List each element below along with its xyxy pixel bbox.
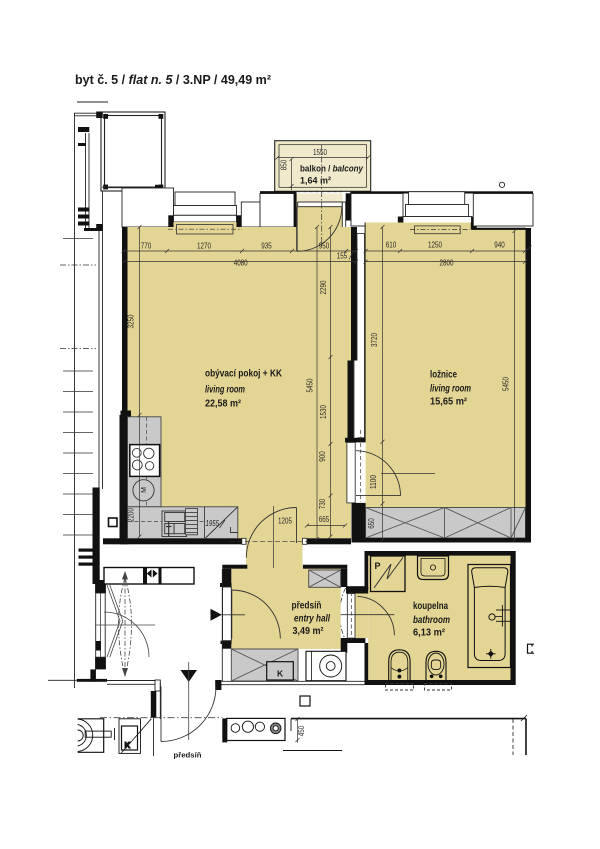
svg-text:1205: 1205 bbox=[278, 516, 292, 526]
svg-text:2200: 2200 bbox=[126, 508, 136, 522]
svg-text:bathroom: bathroom bbox=[413, 614, 450, 626]
svg-text:1250: 1250 bbox=[428, 240, 442, 250]
svg-text:4080: 4080 bbox=[234, 257, 248, 267]
svg-text:K: K bbox=[125, 741, 131, 750]
svg-text:850: 850 bbox=[279, 160, 289, 171]
svg-text:2290: 2290 bbox=[318, 280, 328, 294]
svg-text:6,13 m²: 6,13 m² bbox=[413, 627, 445, 639]
svg-text:living room: living room bbox=[430, 383, 471, 395]
svg-text:940: 940 bbox=[494, 240, 505, 250]
svg-text:předsíň: předsíň bbox=[292, 600, 322, 612]
svg-text:665: 665 bbox=[319, 514, 330, 524]
svg-text:1955: 1955 bbox=[206, 519, 220, 528]
svg-text:935: 935 bbox=[261, 241, 272, 251]
svg-text:K: K bbox=[277, 669, 284, 679]
svg-text:450: 450 bbox=[296, 726, 306, 737]
svg-text:byt č. 5 / flat n. 5 / 3.NP /: byt č. 5 / flat n. 5 / 3.NP / 49,49 m² bbox=[75, 72, 272, 87]
svg-text:950: 950 bbox=[319, 241, 330, 251]
svg-text:1270: 1270 bbox=[197, 241, 211, 251]
svg-text:650: 650 bbox=[366, 518, 376, 529]
svg-text:ložnice: ložnice bbox=[430, 369, 457, 381]
svg-text:15,65 m²: 15,65 m² bbox=[430, 396, 467, 408]
svg-text:balkon / balcony: balkon / balcony bbox=[300, 164, 364, 175]
svg-text:1530: 1530 bbox=[318, 405, 328, 419]
svg-text:koupelna: koupelna bbox=[413, 600, 448, 612]
svg-text:3,49 m²: 3,49 m² bbox=[293, 625, 324, 637]
svg-text:3720: 3720 bbox=[369, 333, 379, 347]
svg-text:155: 155 bbox=[337, 251, 348, 261]
svg-text:1,64 m²: 1,64 m² bbox=[300, 176, 331, 187]
svg-text:22,58 m²: 22,58 m² bbox=[205, 398, 241, 410]
svg-text:770: 770 bbox=[141, 241, 152, 251]
svg-text:entry hall: entry hall bbox=[294, 613, 331, 625]
svg-text:5450: 5450 bbox=[501, 377, 511, 391]
svg-text:M: M bbox=[141, 487, 148, 493]
svg-text:obývací pokoj + KK: obývací pokoj + KK bbox=[205, 368, 282, 380]
svg-text:3250: 3250 bbox=[126, 314, 136, 328]
svg-text:730: 730 bbox=[317, 499, 327, 510]
svg-text:living room: living room bbox=[205, 384, 245, 396]
svg-text:P: P bbox=[375, 561, 381, 571]
svg-text:1100: 1100 bbox=[368, 475, 378, 489]
svg-text:5450: 5450 bbox=[305, 378, 315, 392]
svg-text:2800: 2800 bbox=[440, 257, 454, 267]
svg-text:předsíň: předsíň bbox=[174, 753, 202, 760]
svg-text:610: 610 bbox=[386, 240, 397, 250]
svg-text:1550: 1550 bbox=[313, 147, 327, 157]
svg-text:900: 900 bbox=[317, 451, 327, 462]
